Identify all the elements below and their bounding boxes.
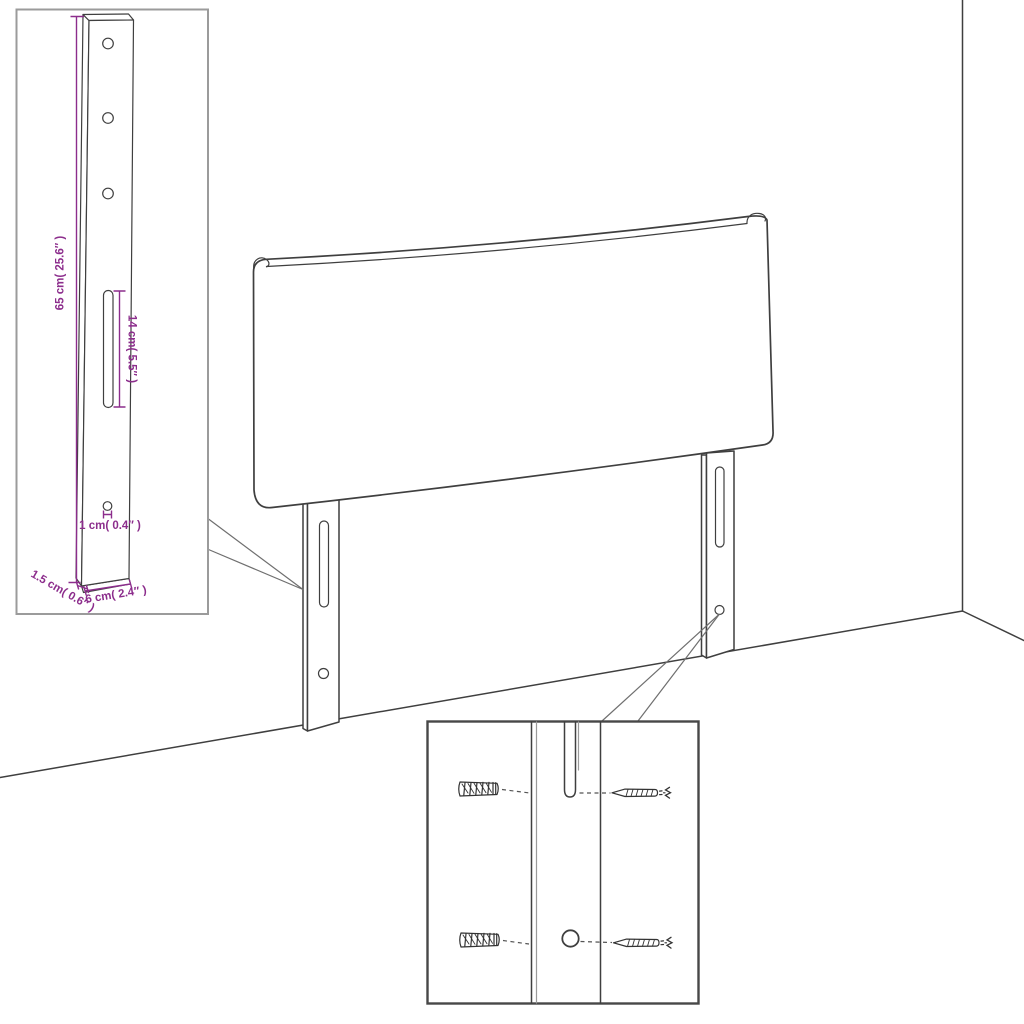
callout-line [602,614,720,721]
floor-line-right [963,611,1024,641]
label-bracket-height: 65 cm( 25.6″ ) [55,236,67,311]
left-leg [303,485,339,731]
product-diagram-headboard: 65 cm( 25.6″ ) 14 cm( 5.5″ ) 1 cm( 0.4″ … [0,0,1024,1024]
bracket-drawing [76,14,134,593]
callout-wedge-bracket [209,519,304,590]
detail-inset-hardware [428,722,699,1004]
wall-plug-icon [459,782,499,796]
callout-line [209,519,304,590]
right-leg-front-face [707,451,735,658]
headboard-panel [254,213,774,507]
detail-inset-bracket: 65 cm( 25.6″ ) 14 cm( 5.5″ ) 1 cm( 0.4″ … [17,10,209,615]
wall-plug-icon [460,933,500,947]
left-leg-front-face [308,485,340,731]
right-leg [702,451,735,658]
headboard-panel-outline [254,216,774,508]
label-hole-size: 1 cm( 0.4″ ) [79,520,141,532]
hardware-inset-frame [428,722,699,1004]
label-slot-length: 14 cm( 5.5″ ) [126,315,138,383]
callout-line [638,614,720,721]
callout-line [209,550,304,590]
callout-wedge-hardware [602,614,720,721]
assembly-diagram-svg: 65 cm( 25.6″ ) 14 cm( 5.5″ ) 1 cm( 0.4″ … [0,0,1024,1024]
